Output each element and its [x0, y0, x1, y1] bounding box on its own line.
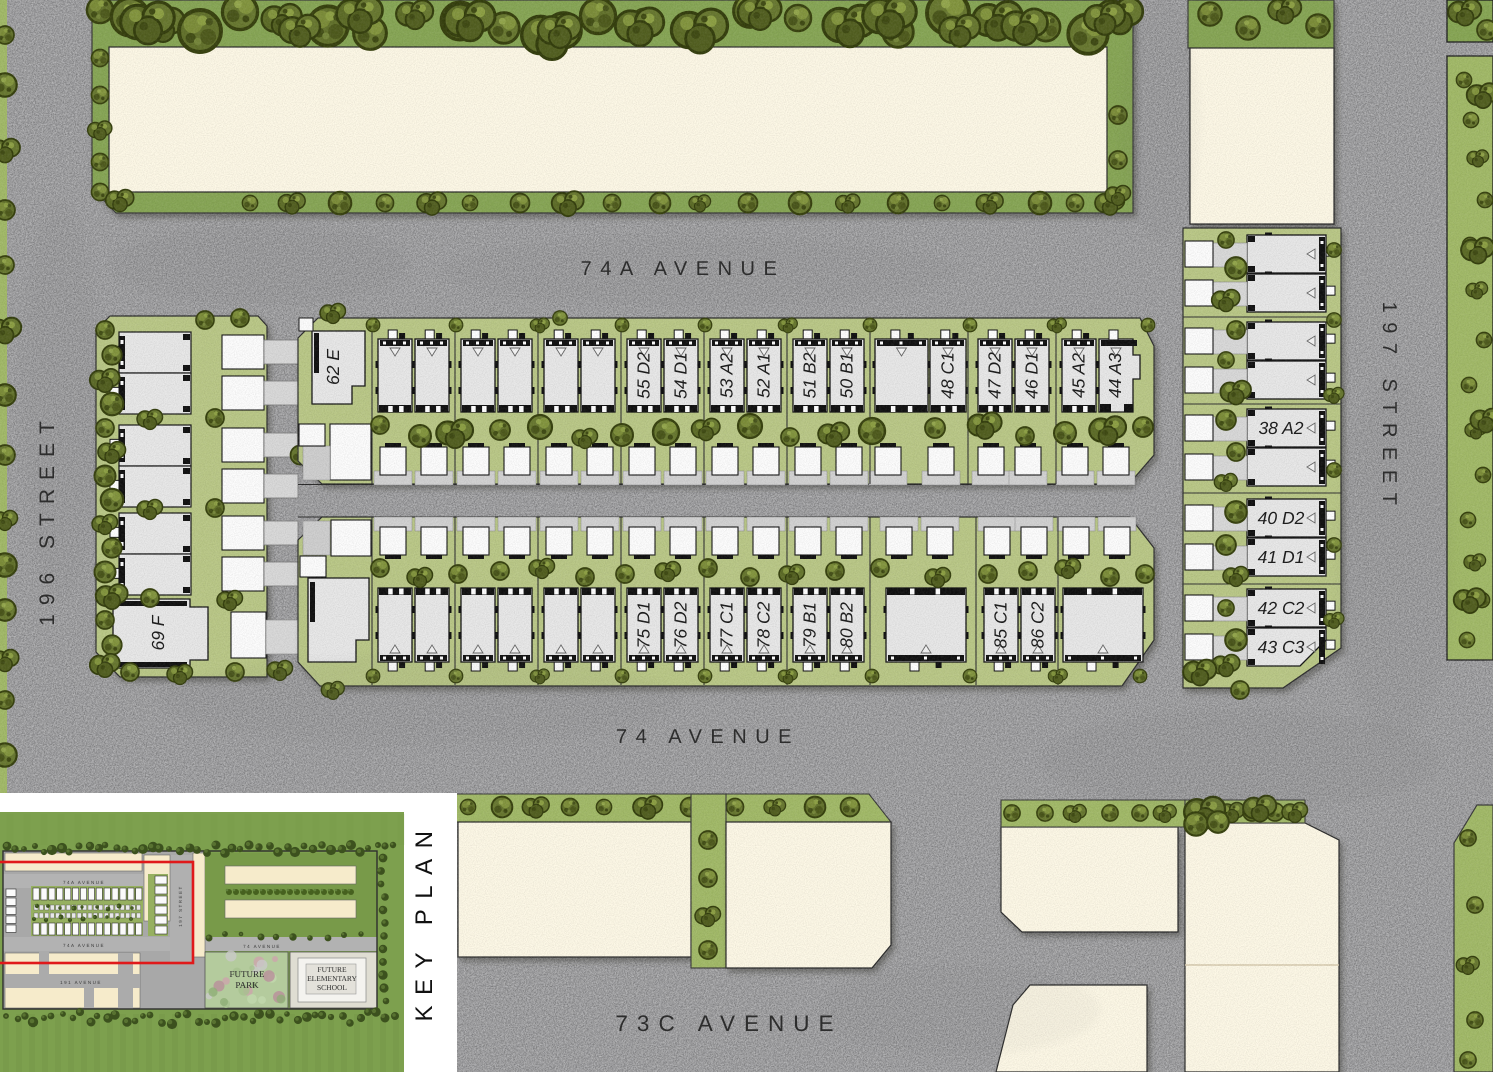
- svg-text:74A AVENUE: 74A AVENUE: [581, 258, 786, 280]
- svg-text:ELEMENTARY: ELEMENTARY: [307, 974, 357, 983]
- svg-text:KEY PLAN: KEY PLAN: [411, 821, 438, 1022]
- svg-text:SCHOOL: SCHOOL: [317, 983, 347, 992]
- svg-text:74 AVENUE: 74 AVENUE: [243, 944, 281, 949]
- svg-text:196 STREET: 196 STREET: [36, 412, 59, 626]
- svg-text:74 AVENUE: 74 AVENUE: [616, 726, 800, 748]
- svg-text:FUTURE: FUTURE: [229, 969, 265, 979]
- svg-text:197 STREET: 197 STREET: [178, 885, 183, 927]
- svg-text:74A AVENUE: 74A AVENUE: [63, 943, 105, 948]
- svg-text:197 STREET: 197 STREET: [1378, 302, 1400, 515]
- svg-text:191 AVENUE: 191 AVENUE: [60, 980, 102, 985]
- svg-text:74A AVENUE: 74A AVENUE: [63, 880, 105, 885]
- svg-text:PARK: PARK: [235, 980, 259, 990]
- svg-text:FUTURE: FUTURE: [317, 965, 347, 974]
- svg-text:73C AVENUE: 73C AVENUE: [615, 1011, 842, 1036]
